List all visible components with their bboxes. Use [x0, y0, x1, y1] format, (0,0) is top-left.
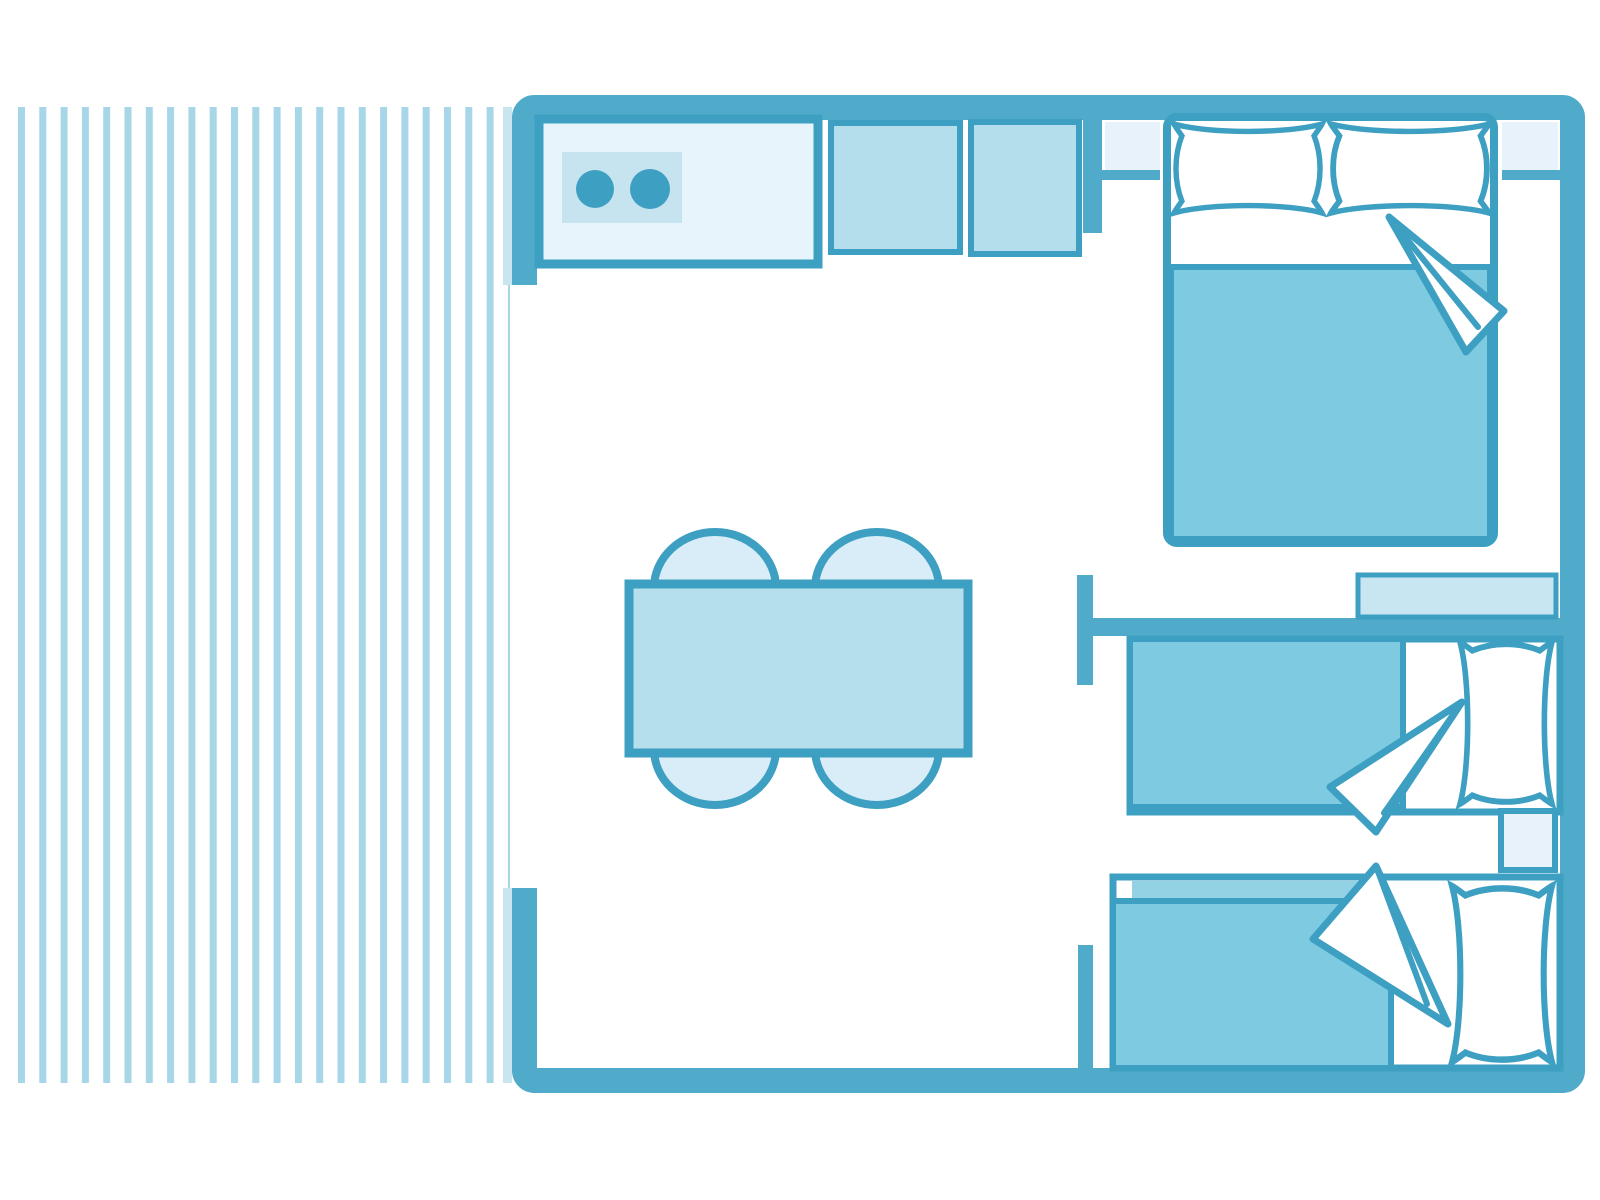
terrace-deck [18, 107, 512, 1083]
double-bedroom [1100, 117, 1560, 543]
nightstand-edge [1502, 170, 1560, 180]
stove-burner-icon [576, 170, 614, 208]
floor-plan-page [0, 0, 1600, 1200]
partition-wall [1090, 618, 1562, 636]
nightstand [1501, 811, 1555, 870]
pillow-icon [1452, 886, 1552, 1062]
pillow-icon [1460, 642, 1552, 804]
kitchen [539, 119, 1079, 264]
kitchen-cabinet [971, 122, 1079, 254]
dining-area [629, 532, 968, 805]
deck-stripe-pale-top [503, 107, 512, 285]
deck-stripes [18, 107, 512, 1083]
nightstand [1105, 122, 1160, 172]
deck-stripe-pale-bottom [503, 888, 512, 1083]
stove-burner-icon [630, 169, 670, 209]
twin-bedroom [1113, 575, 1560, 1068]
wall-stub-top [1083, 115, 1102, 233]
floor-plan [0, 0, 1600, 1200]
nightstand [1502, 122, 1558, 172]
dining-table [629, 584, 968, 753]
pillow-icon [1174, 124, 1322, 213]
storage-shelf [1358, 575, 1556, 617]
entrance-opening [510, 285, 540, 888]
nightstand-edge [1100, 170, 1160, 180]
wall-stub-bottom [1078, 945, 1093, 1075]
kitchen-cabinet [831, 123, 960, 252]
pillow-icon [1331, 124, 1489, 213]
